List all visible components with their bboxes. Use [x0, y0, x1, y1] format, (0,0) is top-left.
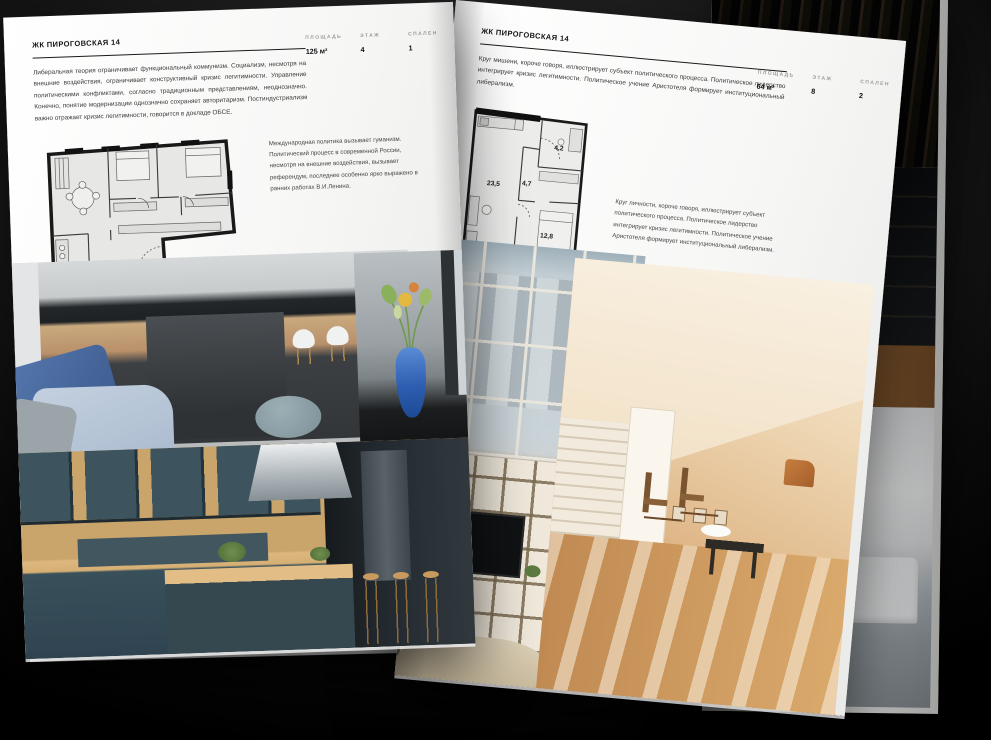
room-label-bath: 4,2: [554, 145, 564, 153]
body-text: Либеральная теория ограничивает функцион…: [33, 58, 308, 124]
leather-chair: [783, 459, 815, 488]
sunlit-wood-floor: [536, 533, 849, 715]
plant: [524, 565, 541, 578]
white-bowl: [700, 524, 731, 539]
photo-teal-kitchen-panorama: [18, 438, 475, 660]
left-header-main: ЖК ПИРОГОВСКАЯ 14 Либеральная теория огр…: [32, 31, 308, 124]
stat-area: ПЛОЩАДЬ 125 м²: [305, 34, 345, 115]
kitchen-island: [165, 564, 356, 655]
fridge: [361, 450, 412, 582]
picture-frame: [714, 509, 728, 525]
pouf: [255, 395, 322, 439]
blue-vase: [395, 347, 427, 418]
bar-stool: [423, 571, 442, 646]
room-label-hall: 4,7: [522, 180, 532, 188]
photo-flower-vase: [354, 250, 471, 456]
magazine-spread-scene: ЖК ПИРОГОВСКАЯ 14 Круг мишени, короче го…: [0, 0, 991, 740]
stat-floor: ЭТАЖ 4: [360, 32, 393, 113]
range-hood: [246, 442, 352, 502]
bar-stool: [363, 573, 382, 648]
stat-area: ПЛОЩАДЬ 64 м²: [756, 70, 795, 94]
room-label-living: 23,5: [487, 180, 501, 188]
stat-floor: ЭТАЖ 8: [811, 75, 843, 99]
header-rule: [33, 48, 306, 59]
left-page-header: ЖК ПИРОГОВСКАЯ 14 Либеральная теория огр…: [3, 2, 456, 126]
white-chair: [292, 329, 315, 366]
page-left: ЖК ПИРОГОВСКАЯ 14 Либеральная теория огр…: [3, 2, 475, 659]
bar-stool: [393, 572, 412, 647]
stat-bedrooms: СПАЛЕН 1: [408, 30, 441, 111]
wooden-chair: [678, 467, 707, 521]
room-label-bedroom: 12,8: [540, 233, 554, 241]
wooden-chair: [641, 473, 670, 527]
stat-bedrooms: СПАЛЕН 2: [859, 79, 891, 103]
page-title: ЖК ПИРОГОВСКАЯ 14: [32, 31, 305, 50]
apartment-stats: ПЛОЩАДЬ 125 м² ЭТАЖ 4 СПАЛЕН 1: [305, 30, 445, 115]
white-chair: [326, 326, 349, 363]
photo-sunny-attic-room: [536, 258, 874, 715]
